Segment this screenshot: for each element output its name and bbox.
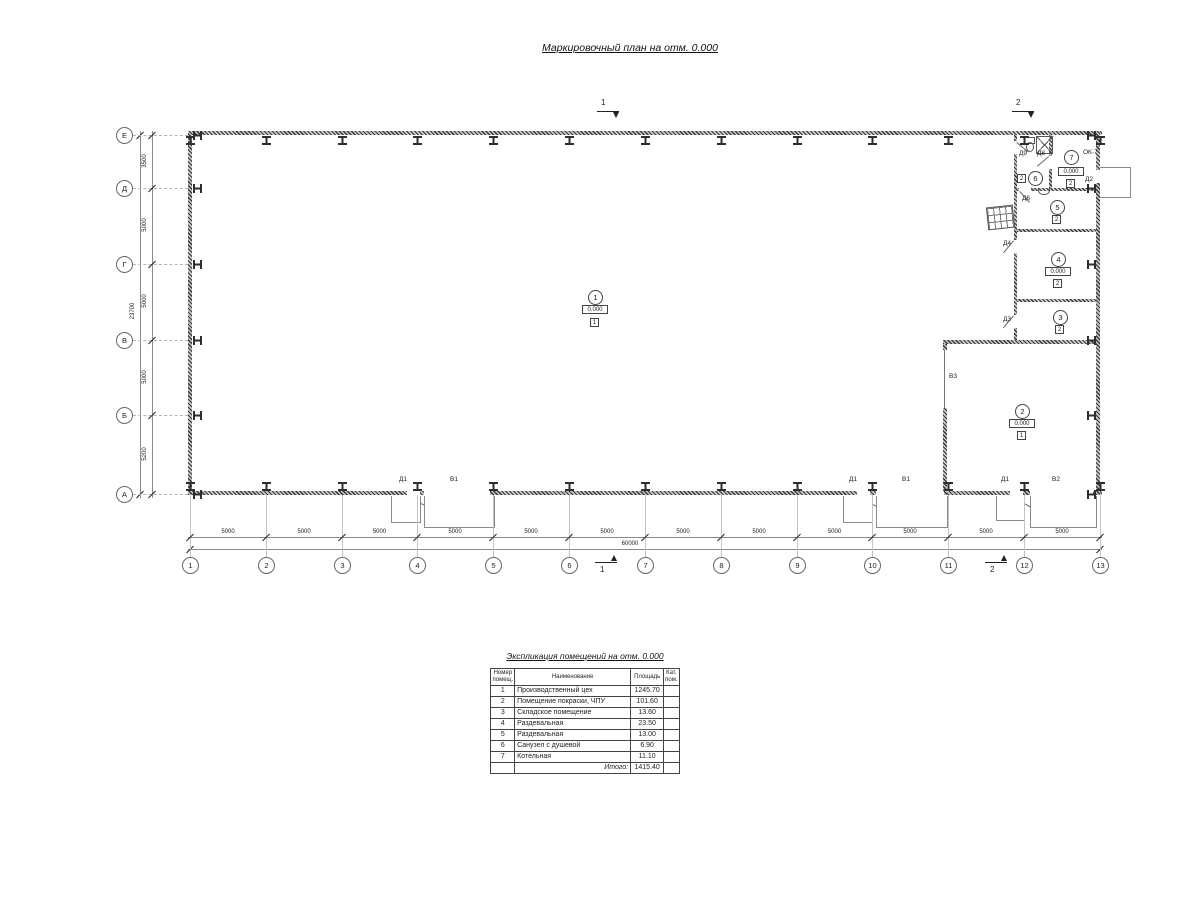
door-label-d1: Д1: [1001, 477, 1009, 484]
dimension-label: 5000: [142, 357, 148, 397]
dimension-label: 5000: [435, 529, 475, 535]
axis-line: [133, 340, 188, 341]
room-category-badge: 1: [1017, 431, 1026, 440]
room-area: 101.60: [631, 697, 664, 708]
room-name: Раздевальная: [515, 730, 631, 741]
column-ibeam-icon: [641, 482, 650, 491]
extension-line: [797, 495, 798, 557]
room-elevation: 0.000: [1058, 167, 1084, 176]
column-ibeam-icon: [793, 482, 802, 491]
dimension-label: 5000: [360, 529, 400, 535]
ramp-v1b: [876, 496, 948, 528]
room-category-badge: 2: [1055, 325, 1064, 334]
room-elevation: 0.000: [1045, 267, 1071, 276]
sink-icon: [1038, 188, 1050, 195]
table-row: 6Санузел с душевой6.90: [491, 741, 679, 752]
room-name: Производственный цех: [515, 686, 631, 697]
dimension-label: 5000: [142, 205, 148, 245]
column-ibeam-icon: [193, 131, 202, 140]
table-row: 1Производственный цех1245.70: [491, 686, 679, 697]
room-area: 13.00: [631, 730, 664, 741]
landing-d2: [1100, 167, 1131, 198]
door-opening-d1b: [857, 491, 870, 495]
column-ibeam-icon: [489, 482, 498, 491]
extension-line: [190, 495, 191, 557]
door-opening-d1a: [407, 491, 420, 495]
table-row: 7Котельная11.10: [491, 752, 679, 763]
column-ibeam-icon: [1020, 482, 1029, 491]
stairs-icon: [986, 205, 1015, 231]
column-ibeam-icon: [413, 136, 422, 145]
section-mark-2-bottom: 2: [990, 566, 994, 574]
column-ibeam-icon: [944, 136, 953, 145]
door-opening-d6: [1019, 188, 1031, 191]
column-ibeam-icon: [193, 411, 202, 420]
ramp-v1a: [424, 496, 495, 528]
column-ibeam-icon: [793, 136, 802, 145]
wall-rooms-block-left: [1014, 135, 1017, 342]
dimension-label: 5000: [1042, 529, 1082, 535]
room-name: Помещение покраски, ЧПУ: [515, 697, 631, 708]
table-row: 2Помещение покраски, ЧПУ101.60: [491, 697, 679, 708]
dimension-label: 5000: [815, 529, 855, 535]
room-category-badge: 1: [590, 318, 599, 327]
wall-exterior-left: [188, 131, 192, 495]
room-category-badge: 2: [1017, 174, 1026, 183]
gate-label-v1: В1: [450, 477, 458, 484]
col-header-area: Площадь: [631, 669, 664, 686]
room-area: 11.10: [631, 752, 664, 763]
column-ibeam-icon: [193, 336, 202, 345]
explication-block: Экспликация помещений на отм. 0.000 Номе…: [487, 651, 683, 774]
column-ibeam-icon: [413, 482, 422, 491]
column-ibeam-icon: [193, 184, 202, 193]
room-number-badge: 2: [1015, 404, 1030, 419]
axis-line: [133, 494, 188, 495]
column-ibeam-icon: [1087, 336, 1096, 345]
room-category-badge: 2: [1052, 215, 1061, 224]
axis-letter-circle: Е: [116, 127, 133, 144]
section-mark-2-top: 2: [1016, 99, 1020, 107]
axis-number-circle: 6: [561, 557, 578, 574]
gate-label-v2: В2: [1052, 477, 1060, 484]
axis-letter-circle: А: [116, 486, 133, 503]
vestibule-d1b: [843, 496, 873, 523]
section-arrow-icon: [611, 555, 617, 561]
axis-number-circle: 10: [864, 557, 881, 574]
room-cat: [664, 719, 679, 730]
section-arrow-icon: [1001, 555, 1007, 561]
gate-opening-v1a: [424, 491, 490, 495]
room-cat: [664, 708, 679, 719]
axis-letter-circle: Д: [116, 180, 133, 197]
column-ibeam-icon: [1096, 136, 1105, 145]
section-mark-1-bottom: 1: [600, 566, 604, 574]
door-swing-d8: [1037, 156, 1049, 166]
extension-line: [417, 495, 418, 557]
dimension-label: 5200: [142, 434, 148, 474]
drawing-sheet: Маркировочный план на отм. 0.000: [0, 0, 1200, 900]
column-ibeam-icon: [1087, 131, 1096, 140]
column-ibeam-icon: [565, 482, 574, 491]
gate-label-v1: В1: [902, 477, 910, 484]
dim-line-left-total: [140, 131, 141, 498]
extension-line: [721, 495, 722, 557]
axis-number-circle: 7: [637, 557, 654, 574]
extension-line: [342, 495, 343, 557]
door-label-d6: Д6: [1022, 196, 1030, 203]
column-ibeam-icon: [1087, 260, 1096, 269]
wall-exterior-top: [188, 131, 1102, 135]
column-ibeam-icon: [489, 136, 498, 145]
column-ibeam-icon: [1020, 136, 1029, 145]
column-ibeam-icon: [1087, 411, 1096, 420]
door-opening-d8: [1049, 156, 1052, 169]
dimension-label: 5000: [663, 529, 703, 535]
gate-opening-v2: [1030, 491, 1093, 495]
room-num: 7: [491, 752, 515, 763]
axis-line: [133, 415, 188, 416]
room-number-badge: 1: [588, 290, 603, 305]
axis-letter-circle: Г: [116, 256, 133, 273]
door-label-d3: Д3: [1003, 317, 1011, 324]
dimension-label: 5000: [142, 281, 148, 321]
table-row: 3Складское помещение13.60: [491, 708, 679, 719]
extension-line: [1100, 495, 1101, 557]
column-ibeam-icon: [717, 482, 726, 491]
room-number-badge: 7: [1064, 150, 1079, 165]
column-ibeam-icon: [193, 490, 202, 499]
section-mark-1-top: 1: [601, 99, 605, 107]
extension-line: [266, 495, 267, 557]
axis-number-circle: 13: [1092, 557, 1109, 574]
axis-number-circle: 2: [258, 557, 275, 574]
wall-room4-room3: [1017, 299, 1096, 302]
axis-line: [133, 264, 188, 265]
window-label-ok7: ОК-7: [1083, 150, 1098, 157]
ramp-v2: [1030, 496, 1097, 528]
dimension-label: 5000: [966, 529, 1006, 535]
room-name: Складское помещение: [515, 708, 631, 719]
dimension-label: 5000: [587, 529, 627, 535]
dimension-label: 5000: [284, 529, 324, 535]
extension-line: [948, 495, 949, 557]
column-ibeam-icon: [262, 136, 271, 145]
extension-line: [645, 495, 646, 557]
column-ibeam-icon: [1087, 184, 1096, 193]
gate-v3-leaf: [944, 350, 945, 408]
gate-opening-v1b: [876, 491, 944, 495]
axis-line: [133, 188, 188, 189]
room-number-badge: 6: [1028, 171, 1043, 186]
axis-number-circle: 8: [713, 557, 730, 574]
column-ibeam-icon: [262, 482, 271, 491]
column-ibeam-icon: [868, 136, 877, 145]
section-line-1-bottom: [595, 562, 617, 563]
column-ibeam-icon: [1087, 490, 1096, 499]
room-num: 2: [491, 697, 515, 708]
room-elevation: 0.000: [1009, 419, 1035, 428]
total-label: Итого:: [515, 763, 631, 774]
room-cat: [664, 752, 679, 763]
extension-line: [872, 495, 873, 557]
room-category-badge: 2: [1066, 179, 1075, 188]
door-label-d8: Д8: [1037, 151, 1045, 158]
column-ibeam-icon: [1096, 482, 1105, 491]
dimension-label: 5000: [739, 529, 779, 535]
wall-room5-room4: [1017, 229, 1096, 232]
room-name: Котельная: [515, 752, 631, 763]
section-arrow-icon: [1028, 112, 1034, 118]
col-header-number: Номер помещ.: [491, 669, 515, 686]
table-row: 5Раздевальная13.00: [491, 730, 679, 741]
floor-plan: 1 0.000 1 2 0.000 1 3 2 4 0.000 2 5 2 2 …: [0, 0, 1200, 640]
section-arrow-icon: [613, 112, 619, 118]
room-cat: [664, 741, 679, 752]
room-area: 1245.70: [631, 686, 664, 697]
room-num: 6: [491, 741, 515, 752]
door-label-d1: Д1: [849, 477, 857, 484]
column-ibeam-icon: [868, 482, 877, 491]
room-number-badge: 5: [1050, 200, 1065, 215]
table-total-row: Итого:1415.40: [491, 763, 679, 774]
dimension-label: 5000: [890, 529, 930, 535]
room-cat: [664, 686, 679, 697]
vestibule-d1c: [996, 496, 1025, 521]
axis-number-circle: 4: [409, 557, 426, 574]
axis-line: [133, 135, 188, 136]
axis-letter-circle: В: [116, 332, 133, 349]
room-area: 23.50: [631, 719, 664, 730]
table-header-row: Номер помещ. Наименование Площадь Кат. п…: [491, 669, 679, 686]
explication-title: Экспликация помещений на отм. 0.000: [487, 651, 683, 661]
col-header-category: Кат. пом.: [664, 669, 679, 686]
door-opening-d4: [1014, 240, 1017, 253]
col-header-name: Наименование: [515, 669, 631, 686]
door-label-d9: Д9: [1019, 151, 1027, 158]
room-num: 1: [491, 686, 515, 697]
axis-number-circle: 3: [334, 557, 351, 574]
room-area: 6.90: [631, 741, 664, 752]
room-number-badge: 4: [1051, 252, 1066, 267]
door-opening-d3: [1014, 315, 1017, 328]
room-cat: [664, 730, 679, 741]
column-ibeam-icon: [641, 136, 650, 145]
column-ibeam-icon: [338, 136, 347, 145]
column-ibeam-icon: [338, 482, 347, 491]
room-area: 13.60: [631, 708, 664, 719]
extension-line: [493, 495, 494, 557]
axis-number-circle: 11: [940, 557, 957, 574]
section-line-2-bottom: [985, 562, 1007, 563]
room-name: Санузел с душевой: [515, 741, 631, 752]
table-row: 4Раздевальная23.50: [491, 719, 679, 730]
column-ibeam-icon: [193, 260, 202, 269]
axis-number-circle: 9: [789, 557, 806, 574]
dimension-label: 5000: [511, 529, 551, 535]
room-num: 3: [491, 708, 515, 719]
room-name: Раздевальная: [515, 719, 631, 730]
room-category-badge: 2: [1053, 279, 1062, 288]
axis-number-circle: 1: [182, 557, 199, 574]
column-ibeam-icon: [944, 482, 953, 491]
explication-table: Номер помещ. Наименование Площадь Кат. п…: [490, 668, 679, 774]
dim-total-left: 23700: [130, 291, 136, 331]
extension-line: [569, 495, 570, 557]
axis-letter-circle: Б: [116, 407, 133, 424]
room-number-badge: 3: [1053, 310, 1068, 325]
room-num: 5: [491, 730, 515, 741]
room-num: 4: [491, 719, 515, 730]
dim-total-bottom: 60000: [600, 541, 660, 547]
door-label-d4: Д4: [1003, 241, 1011, 248]
door-opening-d1c: [1010, 491, 1023, 495]
column-ibeam-icon: [565, 136, 574, 145]
door-label-d2: Д2: [1085, 177, 1093, 184]
dimension-label: 3500: [142, 141, 148, 181]
room-cat: [664, 697, 679, 708]
column-ibeam-icon: [717, 136, 726, 145]
door-label-d1: Д1: [399, 477, 407, 484]
wall-room2-top: [943, 340, 1096, 344]
extension-line: [1024, 495, 1025, 557]
dimension-label: 5000: [208, 529, 248, 535]
axis-number-circle: 12: [1016, 557, 1033, 574]
gate-label-v3: В3: [949, 374, 957, 381]
total-value: 1415.40: [631, 763, 664, 774]
room-elevation: 0.000: [582, 305, 608, 314]
axis-number-circle: 5: [485, 557, 502, 574]
